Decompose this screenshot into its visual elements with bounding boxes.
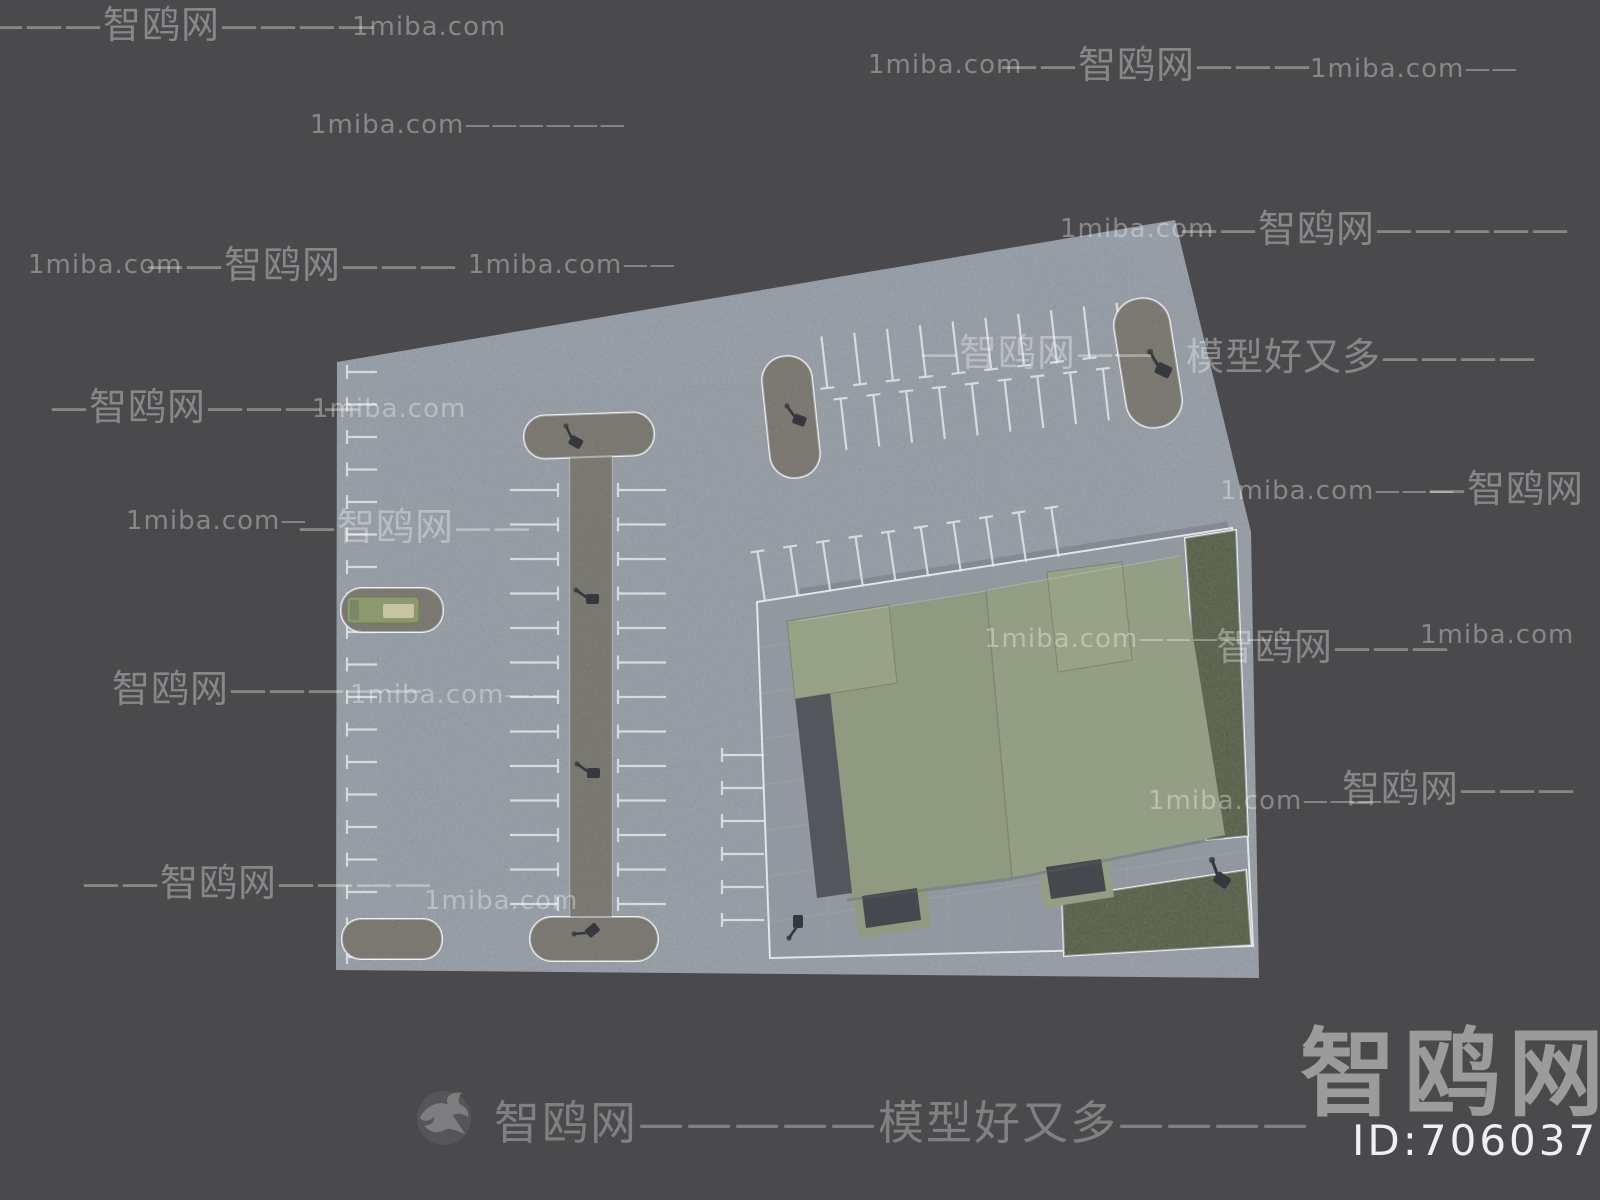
roof-bump-northwest	[787, 605, 897, 699]
site-plan-svg	[0, 0, 1600, 1200]
parked-vehicle	[347, 597, 419, 623]
model-preview-stage: 智鸥网—————模型好又多———— 智鸥网 ID:706037048 ———智鸥…	[0, 0, 1600, 1200]
roof-bump-north	[1047, 562, 1132, 672]
car-windshield	[383, 604, 414, 618]
